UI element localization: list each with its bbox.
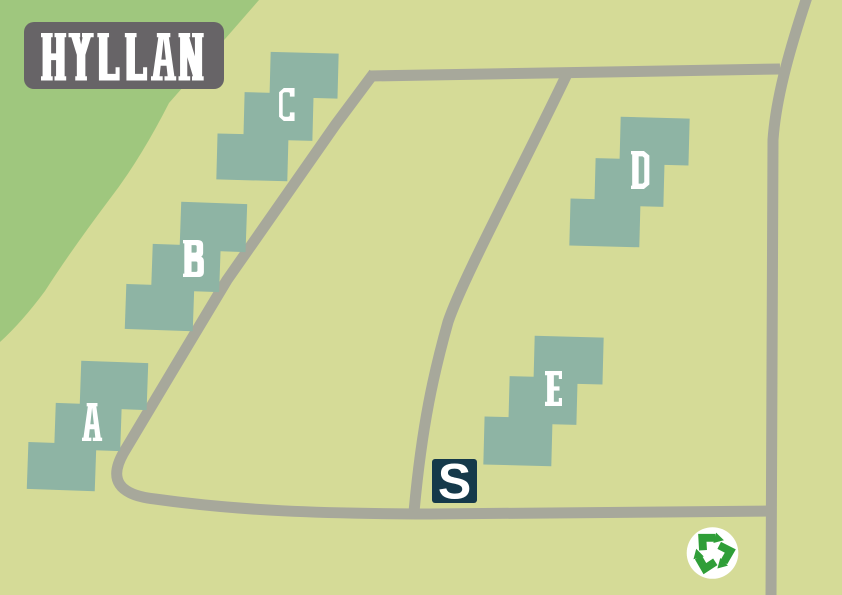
svg-text:S: S bbox=[438, 454, 471, 510]
